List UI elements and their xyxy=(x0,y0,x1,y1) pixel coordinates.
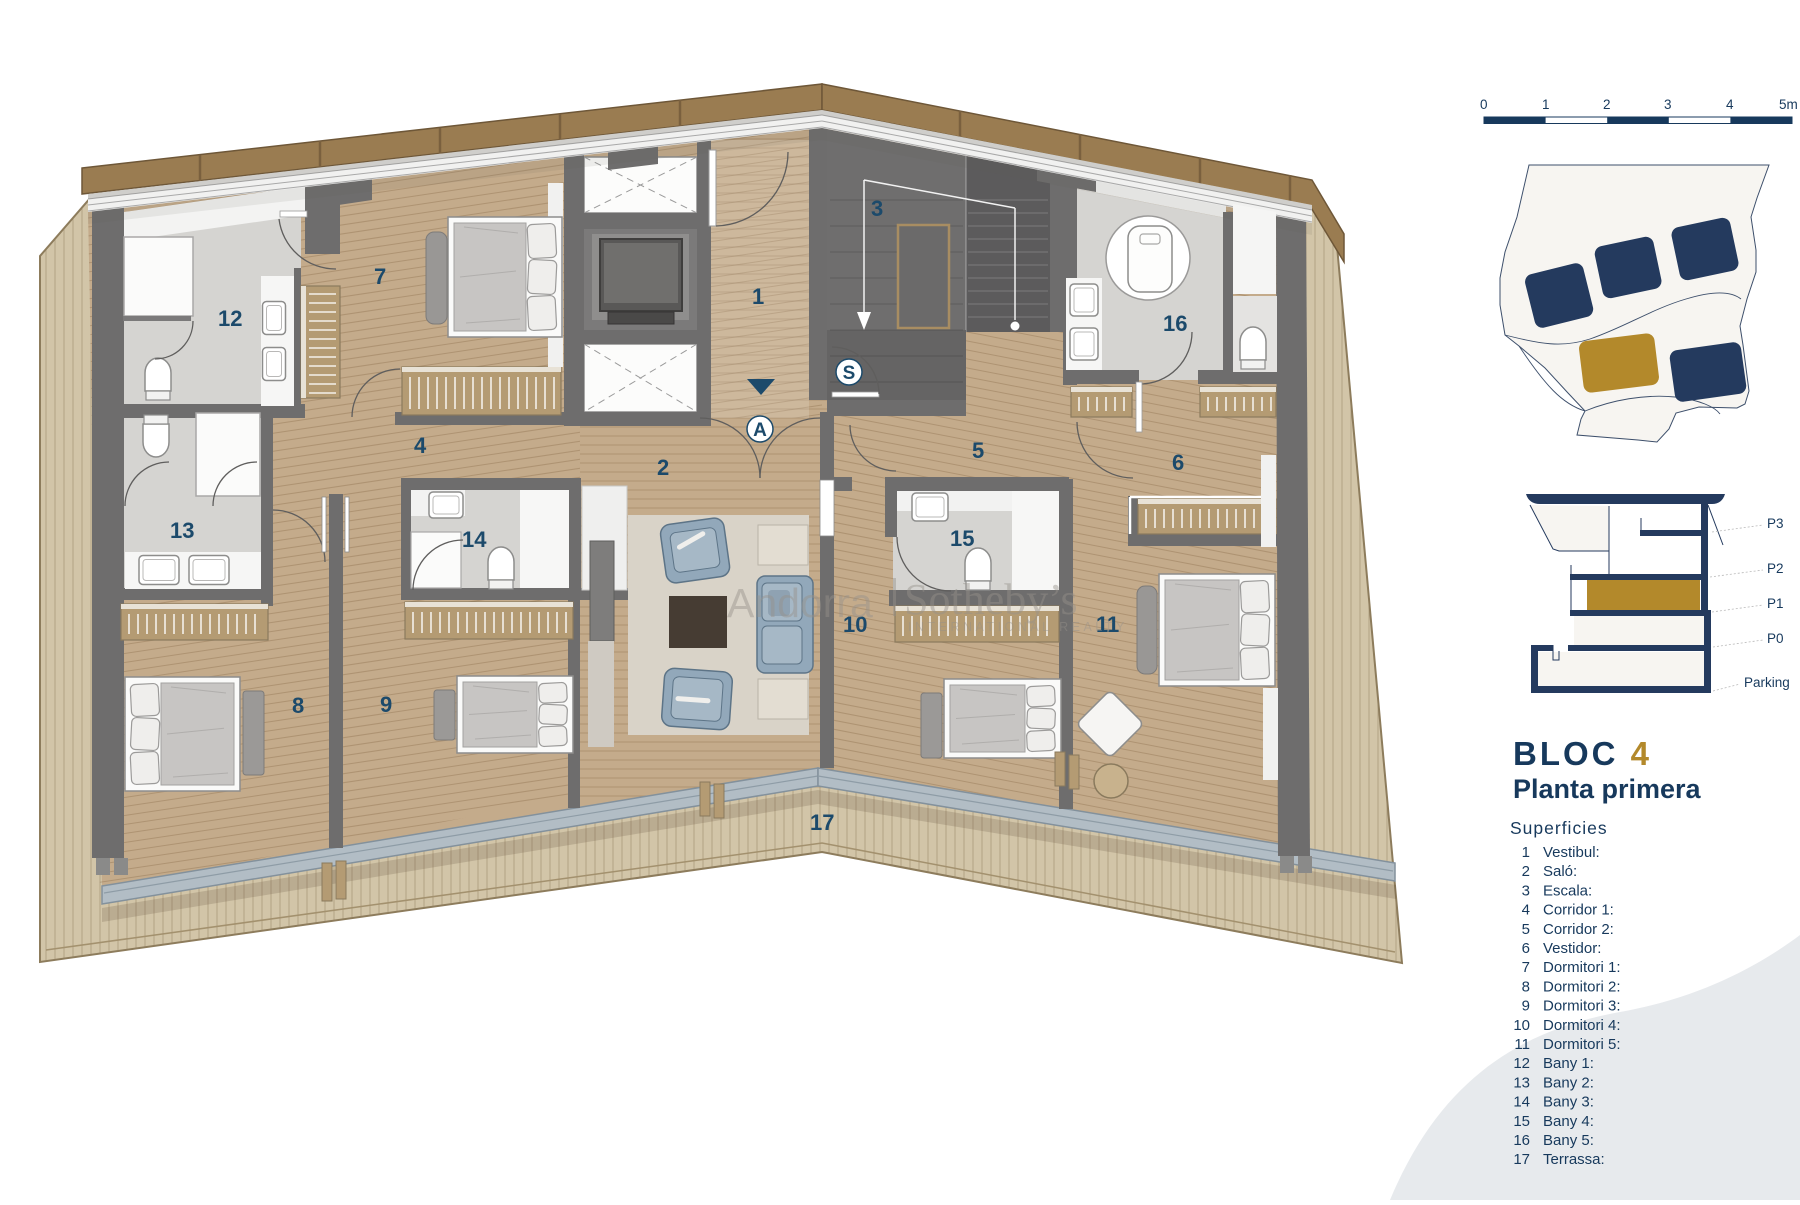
svg-text:Vestidor:: Vestidor: xyxy=(1543,940,1601,957)
svg-text:3: 3 xyxy=(1664,97,1672,112)
svg-text:Dormitori 3:: Dormitori 3: xyxy=(1543,998,1621,1015)
svg-text:10: 10 xyxy=(1513,1017,1530,1034)
svg-text:0: 0 xyxy=(1480,97,1488,112)
svg-text:1: 1 xyxy=(752,284,764,309)
svg-text:4: 4 xyxy=(1522,902,1530,919)
svg-text:8: 8 xyxy=(292,693,304,718)
svg-text:17: 17 xyxy=(810,810,834,835)
svg-text:14: 14 xyxy=(1513,1094,1530,1111)
svg-text:6: 6 xyxy=(1522,940,1530,957)
svg-text:Planta primera: Planta primera xyxy=(1513,774,1702,804)
svg-text:INTERNATIONAL REALTY: INTERNATIONAL REALTY xyxy=(908,620,1128,634)
svg-text:3: 3 xyxy=(871,196,883,221)
svg-text:Andorra: Andorra xyxy=(727,580,873,626)
svg-text:Saló:: Saló: xyxy=(1543,863,1577,880)
svg-text:7: 7 xyxy=(374,264,386,289)
svg-text:15: 15 xyxy=(950,526,974,551)
svg-text:Vestibul:: Vestibul: xyxy=(1543,844,1600,861)
svg-text:Parking: Parking xyxy=(1744,675,1790,690)
svg-text:6: 6 xyxy=(1172,450,1184,475)
svg-text:Bany 3:: Bany 3: xyxy=(1543,1094,1594,1111)
svg-text:2: 2 xyxy=(1522,863,1530,880)
svg-text:11: 11 xyxy=(1514,1036,1530,1053)
svg-text:9: 9 xyxy=(1522,998,1530,1015)
svg-text:A: A xyxy=(753,420,767,441)
svg-text:P1: P1 xyxy=(1767,596,1784,611)
svg-text:8: 8 xyxy=(1522,978,1530,995)
svg-text:Corridor 1:: Corridor 1: xyxy=(1543,902,1614,919)
svg-text:S: S xyxy=(843,363,856,384)
svg-text:5: 5 xyxy=(972,438,984,463)
svg-text:Dormitori 2:: Dormitori 2: xyxy=(1543,978,1621,995)
svg-text:13: 13 xyxy=(170,518,194,543)
svg-text:Terrassa:: Terrassa: xyxy=(1543,1151,1605,1168)
svg-text:12: 12 xyxy=(218,306,242,331)
svg-text:5: 5 xyxy=(1522,921,1530,938)
svg-text:Bany 1:: Bany 1: xyxy=(1543,1055,1594,1072)
svg-text:Dormitori 1:: Dormitori 1: xyxy=(1543,959,1621,976)
svg-text:BLOC 4: BLOC 4 xyxy=(1513,735,1652,772)
svg-text:16: 16 xyxy=(1163,311,1187,336)
svg-text:5m: 5m xyxy=(1779,97,1798,112)
svg-text:4: 4 xyxy=(414,433,427,458)
svg-text:14: 14 xyxy=(462,527,487,552)
svg-text:P2: P2 xyxy=(1767,561,1784,576)
svg-text:12: 12 xyxy=(1513,1055,1530,1072)
svg-text:17: 17 xyxy=(1513,1151,1530,1168)
svg-text:3: 3 xyxy=(1522,882,1530,899)
svg-text:P0: P0 xyxy=(1767,631,1784,646)
svg-text:Bany 2:: Bany 2: xyxy=(1543,1074,1594,1091)
svg-text:Dormitori 4:: Dormitori 4: xyxy=(1543,1017,1621,1034)
svg-text:Corridor 2:: Corridor 2: xyxy=(1543,921,1614,938)
svg-text:Superficies: Superficies xyxy=(1510,818,1608,838)
svg-text:Sotheby’s: Sotheby’s xyxy=(904,575,1078,624)
svg-text:9: 9 xyxy=(380,692,392,717)
svg-text:13: 13 xyxy=(1513,1074,1530,1091)
svg-text:15: 15 xyxy=(1513,1113,1530,1130)
svg-text:Dormitori 5:: Dormitori 5: xyxy=(1543,1036,1621,1053)
svg-text:Bany 4:: Bany 4: xyxy=(1543,1113,1594,1130)
svg-text:2: 2 xyxy=(657,455,669,480)
svg-text:4: 4 xyxy=(1726,97,1734,112)
svg-text:16: 16 xyxy=(1513,1132,1530,1149)
svg-text:7: 7 xyxy=(1522,959,1530,976)
svg-text:1: 1 xyxy=(1522,844,1530,861)
svg-text:P3: P3 xyxy=(1767,516,1784,531)
svg-text:Escala:: Escala: xyxy=(1543,882,1592,899)
svg-text:Bany 5:: Bany 5: xyxy=(1543,1132,1594,1149)
svg-text:2: 2 xyxy=(1603,97,1611,112)
svg-text:1: 1 xyxy=(1542,97,1550,112)
